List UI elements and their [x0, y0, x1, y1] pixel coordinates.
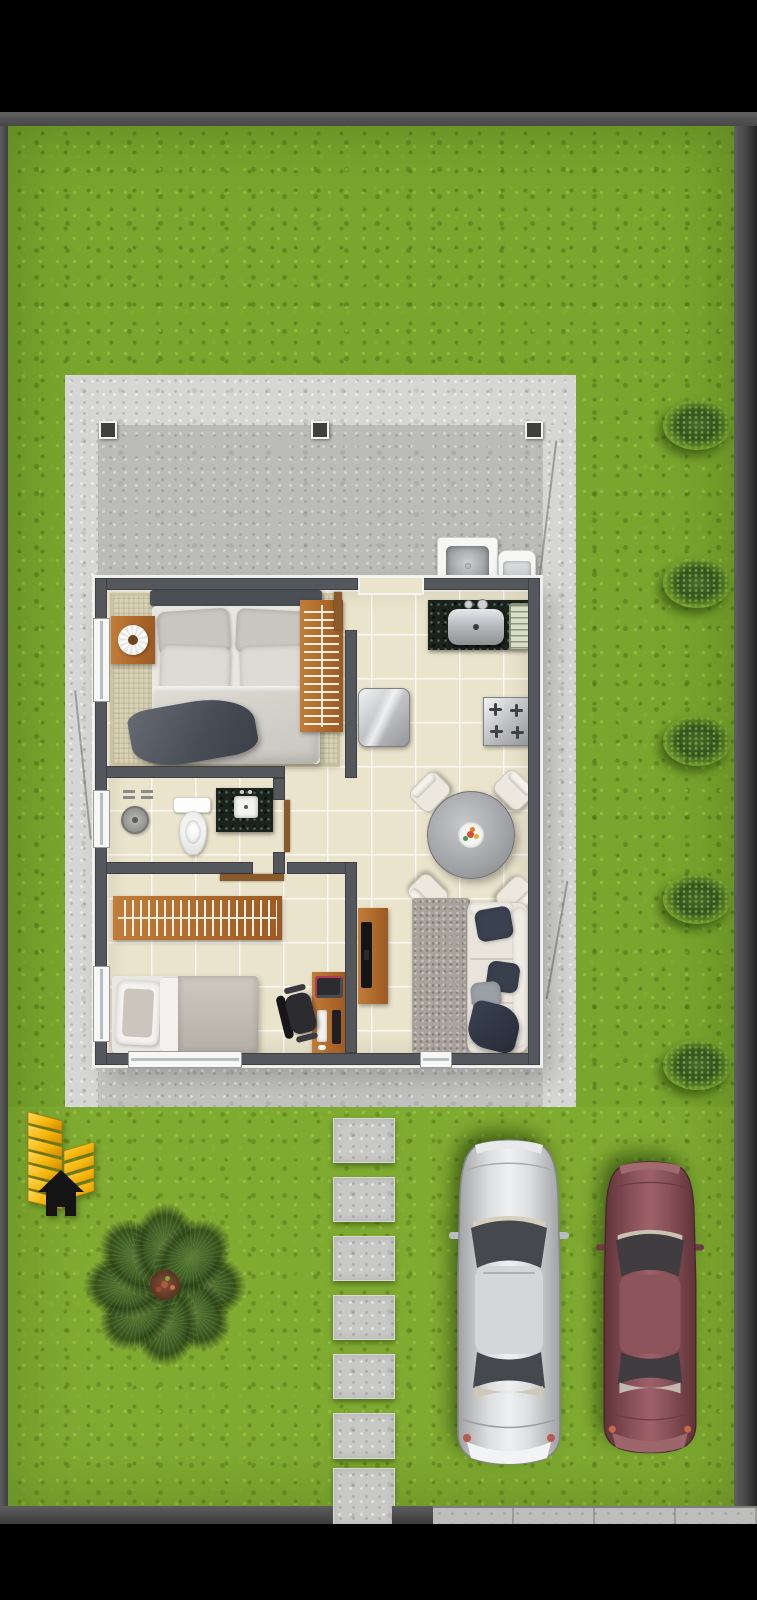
bed-headboard — [150, 590, 322, 606]
sink-drain — [244, 805, 248, 809]
fence-post — [311, 421, 329, 439]
car-roof — [475, 1266, 543, 1354]
window-bedroom1 — [93, 618, 110, 702]
car-taillight — [463, 1434, 471, 1442]
car-taillight — [609, 1426, 616, 1433]
fence-post — [525, 421, 543, 439]
car-sunroof-seam — [483, 1272, 535, 1274]
window-bedroom2-side — [93, 966, 110, 1042]
pad-top-band — [65, 375, 576, 425]
bed-blanket — [178, 976, 258, 1053]
double-bed — [152, 606, 320, 764]
tv — [361, 922, 372, 988]
house — [95, 578, 540, 1065]
exterior-wall-top-left — [95, 578, 358, 590]
dining-table — [427, 791, 515, 879]
car-silver — [447, 1136, 571, 1470]
monitor — [332, 1010, 341, 1044]
burner — [510, 704, 523, 717]
wall-bedroom1-bathroom — [95, 766, 285, 778]
round-tray-center — [128, 635, 138, 645]
bedroom1-door — [334, 592, 342, 630]
sink-taps — [240, 790, 244, 794]
stepping-stone — [333, 1413, 395, 1459]
burner — [511, 726, 524, 739]
printer — [315, 976, 343, 998]
tv-rack — [358, 908, 388, 1004]
bedroom2-door — [220, 874, 284, 881]
room-bedroom-1 — [107, 590, 345, 766]
bathroom-door — [284, 800, 290, 852]
laundry-drain — [465, 563, 471, 569]
toilet-bowl — [179, 811, 207, 855]
faucet-handles — [464, 600, 473, 609]
wardrobe-hangers — [118, 900, 277, 936]
palm-fruits — [161, 1281, 168, 1288]
fruit-plate — [458, 822, 484, 848]
sidewalk — [433, 1506, 757, 1526]
wall-bathroom-right-upper — [273, 778, 285, 800]
refrigerator — [358, 688, 410, 747]
bush — [663, 558, 731, 608]
bottom-letterbox-bar — [0, 1524, 757, 1600]
bush — [663, 400, 731, 450]
living-rug — [412, 898, 470, 1053]
cooktop — [483, 697, 530, 746]
bush — [663, 716, 731, 766]
kitchen-sink-drain — [473, 624, 479, 630]
burner — [489, 703, 502, 716]
boundary-wall-left — [0, 126, 8, 1510]
sofa — [467, 902, 528, 1053]
car-taillight — [547, 1434, 555, 1442]
exterior-wall-right — [528, 578, 540, 1065]
nightstand — [111, 616, 155, 664]
fridge-shine — [359, 689, 409, 746]
builder-logo — [26, 1112, 96, 1225]
window-bathroom — [93, 790, 110, 848]
fence-post — [99, 421, 117, 439]
wardrobe-bedroom2 — [113, 896, 282, 940]
window-bedroom2-front — [128, 1051, 242, 1068]
dish-rack — [509, 603, 530, 651]
wall-bedroom2-living — [345, 862, 357, 1053]
sofa-cushion — [473, 905, 514, 943]
boundary-wall-bottom-mid — [392, 1506, 433, 1524]
kitchen-entry-door — [358, 576, 424, 595]
palm-tree — [72, 1192, 258, 1378]
stepping-stone — [333, 1354, 395, 1399]
bush — [663, 874, 731, 924]
stepping-stone — [333, 1118, 395, 1163]
tv-stand — [364, 950, 369, 960]
bathroom-vanity — [216, 788, 273, 832]
pad-right-band — [543, 425, 576, 1107]
exterior-wall-top-right — [420, 578, 540, 590]
shower-tap — [141, 790, 153, 793]
room-bedroom-2 — [107, 874, 345, 1053]
toilet-seat — [185, 820, 201, 844]
pillow-inner — [122, 988, 154, 1038]
burner — [490, 725, 503, 738]
wall-bathroom-right-lower — [273, 852, 285, 874]
shower-head — [121, 806, 149, 834]
shower-drain — [132, 817, 138, 823]
shower-tap — [123, 790, 135, 793]
wall-bathroom-bedroom2 — [95, 862, 253, 874]
boundary-wall-right — [734, 126, 757, 1508]
kitchen-counter — [428, 600, 528, 650]
stepping-stone — [333, 1177, 395, 1222]
sheet-fold — [160, 978, 180, 1051]
floor-plan-render — [0, 0, 757, 1600]
kitchen-sink — [448, 609, 504, 645]
stepping-stone-crossing — [333, 1468, 395, 1526]
seat-divider — [470, 958, 513, 960]
mouse — [318, 1045, 326, 1050]
car-roof — [619, 1275, 680, 1354]
pillow — [114, 980, 161, 1046]
wall-bedroom1-kitchen — [345, 630, 357, 778]
car-taillight — [684, 1426, 691, 1433]
top-letterbox-bar — [0, 0, 757, 112]
bush — [663, 1040, 731, 1090]
room-bathroom — [107, 778, 273, 862]
window-living — [420, 1051, 452, 1068]
boundary-wall-top — [0, 112, 757, 126]
single-bed — [112, 976, 258, 1053]
stepping-stone — [333, 1236, 395, 1281]
fruits — [467, 831, 474, 838]
boundary-wall-bottom-left — [0, 1506, 333, 1524]
stepping-stone — [333, 1295, 395, 1340]
car-maroon — [592, 1158, 708, 1458]
